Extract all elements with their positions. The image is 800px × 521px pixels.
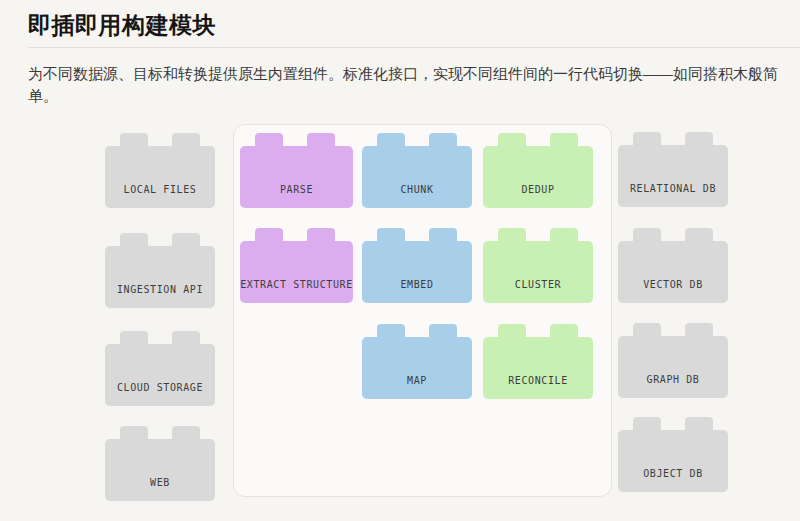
block-label: RECONCILE xyxy=(483,375,593,386)
lego-studs xyxy=(240,228,353,241)
stud-left xyxy=(120,331,148,344)
lego-studs xyxy=(483,228,593,241)
stud-right xyxy=(550,228,578,241)
block-vector-db: VECTOR DB xyxy=(618,228,728,303)
block-body: CHUNK xyxy=(362,146,472,208)
stud-right xyxy=(307,133,335,146)
lego-studs xyxy=(618,323,728,336)
stud-left xyxy=(120,233,148,246)
block-web: WEB xyxy=(105,426,215,501)
stud-left xyxy=(498,228,526,241)
lego-studs xyxy=(362,133,472,146)
stud-right xyxy=(172,133,200,146)
stud-right xyxy=(685,132,713,145)
lego-studs xyxy=(618,228,728,241)
stud-right xyxy=(550,133,578,146)
block-object-db: OBJECT DB xyxy=(618,417,728,492)
stud-left xyxy=(255,228,283,241)
block-chunk: CHUNK xyxy=(362,133,472,208)
block-body: DEDUP xyxy=(483,146,593,208)
stud-right xyxy=(429,133,457,146)
block-extract-structure: EXTRACT STRUCTURE xyxy=(240,228,353,303)
stud-left xyxy=(255,133,283,146)
stud-left xyxy=(633,132,661,145)
block-label: DEDUP xyxy=(483,184,593,195)
block-body: RECONCILE xyxy=(483,337,593,399)
block-body: WEB xyxy=(105,439,215,501)
lego-studs xyxy=(618,417,728,430)
stud-right xyxy=(685,228,713,241)
block-label: OBJECT DB xyxy=(618,468,728,479)
lego-studs xyxy=(618,132,728,145)
block-label: RELATIONAL DB xyxy=(618,183,728,194)
stud-right xyxy=(429,324,457,337)
block-parse: PARSE xyxy=(240,133,353,208)
block-body: CLUSTER xyxy=(483,241,593,303)
stud-right xyxy=(172,426,200,439)
lego-studs xyxy=(240,133,353,146)
page-title: 即插即用构建模块 xyxy=(28,12,800,38)
building-blocks-diagram: LOCAL FILESINGESTION APICLOUD STORAGEWEB… xyxy=(0,120,800,521)
block-label: CLUSTER xyxy=(483,279,593,290)
block-ingestion-api: INGESTION API xyxy=(105,233,215,308)
stud-left xyxy=(377,228,405,241)
block-cloud-storage: CLOUD STORAGE xyxy=(105,331,215,406)
block-label: VECTOR DB xyxy=(618,279,728,290)
lego-studs xyxy=(362,228,472,241)
lego-studs xyxy=(105,233,215,246)
lego-studs xyxy=(105,133,215,146)
block-label: CHUNK xyxy=(362,184,472,195)
block-body: MAP xyxy=(362,337,472,399)
block-label: WEB xyxy=(105,477,215,488)
block-body: EMBED xyxy=(362,241,472,303)
lego-studs xyxy=(105,331,215,344)
block-body: VECTOR DB xyxy=(618,241,728,303)
lego-studs xyxy=(362,324,472,337)
lego-studs xyxy=(105,426,215,439)
block-map: MAP xyxy=(362,324,472,399)
block-label: CLOUD STORAGE xyxy=(105,382,215,393)
page-description: 为不同数据源、目标和转换提供原生内置组件。标准化接口，实现不同组件间的一行代码切… xyxy=(28,63,780,107)
block-label: LOCAL FILES xyxy=(105,184,215,195)
stud-left xyxy=(377,324,405,337)
block-relational-db: RELATIONAL DB xyxy=(618,132,728,207)
stud-left xyxy=(633,228,661,241)
block-body: EXTRACT STRUCTURE xyxy=(240,241,353,303)
block-body: INGESTION API xyxy=(105,246,215,308)
stud-right xyxy=(172,331,200,344)
block-graph-db: GRAPH DB xyxy=(618,323,728,398)
stud-left xyxy=(633,323,661,336)
page: 即插即用构建模块 为不同数据源、目标和转换提供原生内置组件。标准化接口，实现不同… xyxy=(0,0,800,521)
stud-right xyxy=(429,228,457,241)
lego-studs xyxy=(483,324,593,337)
block-label: PARSE xyxy=(240,184,353,195)
stud-left xyxy=(498,324,526,337)
block-local-files: LOCAL FILES xyxy=(105,133,215,208)
block-label: MAP xyxy=(362,375,472,386)
block-body: LOCAL FILES xyxy=(105,146,215,208)
stud-left xyxy=(120,426,148,439)
block-label: EMBED xyxy=(362,279,472,290)
title-divider xyxy=(28,47,800,48)
block-label: INGESTION API xyxy=(105,284,215,295)
stud-right xyxy=(550,324,578,337)
block-dedup: DEDUP xyxy=(483,133,593,208)
stud-right xyxy=(172,233,200,246)
block-body: CLOUD STORAGE xyxy=(105,344,215,406)
block-body: RELATIONAL DB xyxy=(618,145,728,207)
stud-left xyxy=(120,133,148,146)
block-label: GRAPH DB xyxy=(618,374,728,385)
block-body: OBJECT DB xyxy=(618,430,728,492)
stud-left xyxy=(633,417,661,430)
lego-studs xyxy=(483,133,593,146)
block-cluster: CLUSTER xyxy=(483,228,593,303)
block-body: GRAPH DB xyxy=(618,336,728,398)
stud-left xyxy=(377,133,405,146)
stud-right xyxy=(307,228,335,241)
stud-left xyxy=(498,133,526,146)
stud-right xyxy=(685,323,713,336)
block-embed: EMBED xyxy=(362,228,472,303)
block-label: EXTRACT STRUCTURE xyxy=(240,279,353,290)
block-body: PARSE xyxy=(240,146,353,208)
block-reconcile: RECONCILE xyxy=(483,324,593,399)
stud-right xyxy=(685,417,713,430)
